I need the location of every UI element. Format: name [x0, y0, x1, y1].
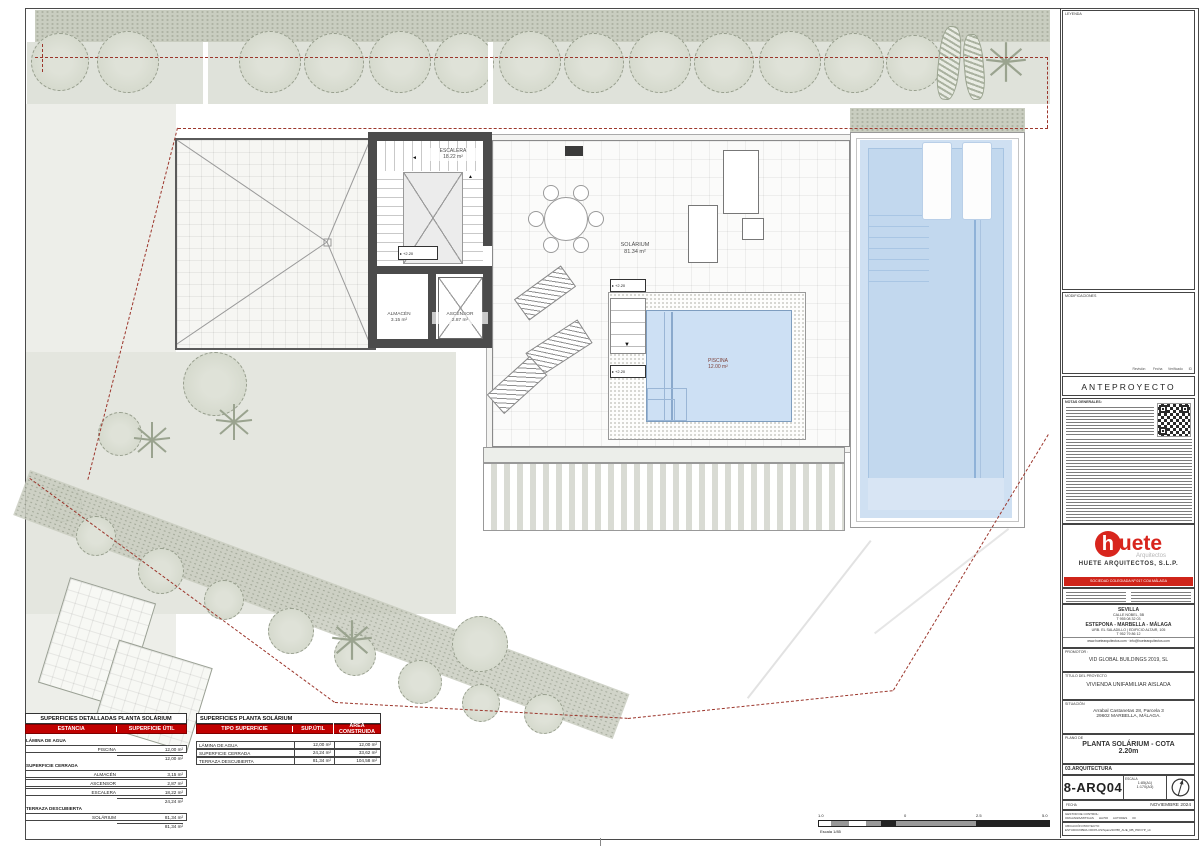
tree-icon	[886, 35, 942, 91]
firm-band: SOCIEDAD COLEGIADA Nº 017 COA MÁLAGA	[1064, 577, 1193, 586]
pergola-beam	[483, 447, 845, 463]
crop-mark	[600, 838, 601, 846]
row-name: TERRAZA DESCUBIERTA	[197, 759, 294, 764]
table-row: SUPERFICIE CERRADA 24,24 m² 33,62 m²	[196, 749, 381, 757]
tree-icon	[452, 616, 508, 672]
arrow-down-icon: ▼	[624, 342, 630, 348]
table-row: ALMACÉN 3,15 m²	[25, 770, 187, 778]
room-area: 81.34 m²	[595, 249, 675, 256]
pool-corner-step	[647, 399, 675, 421]
modifications-label: MODIFICACIONES	[1063, 293, 1194, 299]
notes-text	[1066, 439, 1192, 521]
room-label-escalera: ESCALERA 18.22 m²	[424, 148, 482, 161]
legend-label: LEYENDA	[1063, 11, 1194, 17]
tree-icon	[369, 31, 431, 93]
location-line2: 29602 MARBELLA, MÁLAGA.	[1063, 714, 1194, 719]
chair-icon	[573, 237, 589, 253]
col-header: SUPERFICIE ÚTIL	[116, 726, 186, 732]
section-label: LÁMINA DE AGUA	[26, 738, 66, 743]
scale-caption: Escala 1/85	[820, 829, 841, 834]
offices-box: SEVILLA CALLE NOBEL, 5B T 955 08 32 03 E…	[1062, 604, 1195, 648]
pool-lounger-icon	[922, 142, 952, 220]
chair-icon	[588, 211, 604, 227]
section-subtotal: 12,00 m²	[117, 755, 183, 761]
promotor-label: PROMOTOR :	[1063, 649, 1194, 655]
tree-icon	[694, 33, 754, 93]
scale-value-2: 1:170(A3)	[1124, 785, 1166, 789]
architect-text	[1131, 592, 1191, 602]
sheet-code-row: 8-ARQ04 ESCALA 1:85(A1) 1:170(A3)	[1062, 775, 1195, 800]
level-marker: ▸+2.20	[610, 365, 646, 378]
planter	[688, 205, 718, 263]
date-value: NOVIEMBRE 2024	[1150, 803, 1191, 808]
path-value: ESTUDIO/OBRA OFFPLUS/Spain/20788_AUE_RB_…	[1065, 828, 1192, 832]
tree-icon	[268, 608, 314, 654]
tree-icon	[564, 33, 624, 93]
table-row: LÁMINA DE AGUA 12,00 m² 12,00 m²	[196, 741, 381, 749]
boundary-line	[35, 57, 1048, 58]
row-name: SUPERFICIE CERRADA	[197, 751, 294, 756]
room-area: 3.15 m²	[371, 318, 427, 324]
tree-icon	[462, 684, 500, 722]
planter	[723, 150, 759, 214]
row-construida: 33,62 m²	[334, 750, 380, 756]
firm-name: HUETE ARQUITECTOS, S.L.P.	[1063, 561, 1194, 567]
row-util: 12,00 m²	[294, 742, 334, 748]
scale-tick-label: 1.0	[818, 813, 824, 818]
tree-icon	[824, 33, 884, 93]
row-value: 18,22 m²	[119, 790, 186, 795]
location-label: SITUACIÓN	[1063, 701, 1194, 707]
row-value: 81,34 m²	[119, 815, 186, 820]
scale-bar-segments	[818, 820, 1050, 827]
control-row: GESTOR DE CONTROL: ORGANIZA/MITIGAS HA70…	[1062, 810, 1195, 822]
col-header: TIPO SUPERFICIE	[197, 726, 292, 732]
sheet-name-line1: PLANTA SOLÁRIUM - COTA	[1063, 741, 1194, 748]
flag-icon: ▸	[612, 283, 614, 288]
row-name: LÁMINA DE AGUA	[197, 743, 294, 748]
architects-row	[1062, 588, 1195, 604]
level-marker: ▸+2.20	[398, 246, 438, 260]
architect-text	[1066, 592, 1126, 602]
logo-h-icon: h	[1095, 531, 1121, 557]
palm-tree-icon	[984, 40, 1028, 84]
notes-text	[1066, 407, 1154, 435]
project-label: TÍTULO DEL PROYECTO	[1063, 673, 1194, 679]
section-label: TERRAZA DESCUBIERTA	[26, 806, 82, 811]
pergola-louvers	[483, 463, 845, 531]
project-title-box: TÍTULO DEL PROYECTO VIVIENDA UNIFAMILIAR…	[1062, 672, 1195, 700]
table-header-row: TIPO SUPERFICIE SUP.ÚTIL ÁREA CONSTRUIDA	[196, 724, 381, 734]
qr-code	[1157, 403, 1191, 437]
tree-icon	[499, 31, 561, 93]
tree-icon	[398, 660, 442, 704]
discipline-row: 03.ARQUITECTURA	[1062, 764, 1195, 775]
level-value: +2.20	[403, 251, 413, 256]
control-value: ORGANIZA/MITIGAS HA700 AUTODES 00	[1065, 816, 1192, 820]
roof-ridge-lines	[177, 140, 374, 348]
table-row: PISCINA 12,00 m²	[25, 745, 187, 753]
row-name: ESCALERA	[26, 790, 119, 795]
tree-icon	[204, 580, 244, 620]
titleblock-divider	[1060, 8, 1061, 838]
level-marker: ▸+2.20	[610, 279, 646, 292]
arrow-left-icon: ◄	[412, 155, 417, 161]
tree-icon	[759, 31, 821, 93]
row-name: SOLÁRIUM	[26, 815, 119, 820]
row-value: 3,15 m²	[119, 772, 186, 777]
level-value: +2.20	[615, 369, 625, 374]
table-title: SUPERFICIES DETALLADAS PLANTA SOLÁRIUM	[25, 713, 187, 724]
room-label-ascensor: ASCENSOR 2.87 m²	[432, 312, 488, 324]
round-table-icon	[544, 197, 588, 241]
revision-headers: Revisión Fecha Verificado ID	[1132, 367, 1192, 371]
chair-icon	[528, 211, 544, 227]
path-gap	[203, 42, 208, 104]
row-util: 81,34 m²	[294, 758, 334, 764]
sheet-name-box: PLANO DE PLANTA SOLÁRIUM - COTA 2.20m	[1062, 734, 1195, 764]
row-construida: 12,00 m²	[334, 742, 380, 748]
tree-icon	[304, 33, 364, 93]
project-value: VIVIENDA UNIFAMILIAR AISLADA	[1063, 682, 1194, 688]
row-name: ASCENSOR	[26, 781, 119, 786]
scale-tick-label: 2.5	[976, 813, 982, 818]
logo-box: h uete Arquitectos HUETE ARQUITECTOS, S.…	[1062, 524, 1195, 588]
table-row: ESCALERA 18,22 m²	[25, 788, 187, 796]
row-name: PISCINA	[26, 747, 119, 752]
room-label-piscina: PISCINA 12.00 m²	[686, 358, 750, 371]
row-construida: 104,58 m²	[334, 758, 380, 764]
arrow-up-icon: ▲	[468, 174, 473, 180]
scale-bar: 1.0 0 2.5 5.0 Escala 1/85	[818, 813, 1050, 835]
tree-icon	[97, 31, 159, 93]
date-label: FECHA	[1066, 803, 1077, 807]
palm-tree-icon	[330, 618, 374, 662]
boundary-line	[42, 44, 43, 72]
section-subtotal: 81,34 m²	[117, 823, 183, 829]
drawing-sheet: SOLÁRIUM 81.34 m² PISCINA 12.00 m² ▼ ◄ ▲…	[0, 0, 1200, 846]
pool-shallow-band	[868, 478, 1004, 510]
sheet-code: 8-ARQ04	[1063, 776, 1124, 799]
palm-tree-icon	[132, 420, 172, 460]
promotor-box: PROMOTOR : VID GLOBAL BUILDINGS 2019, SL	[1062, 648, 1195, 672]
room-area: 18.22 m²	[424, 154, 482, 160]
row-util: 24,24 m²	[294, 750, 334, 756]
date-row: FECHA NOVIEMBRE 2024	[1062, 800, 1195, 810]
room-label-almacen: ALMACÉN 3.15 m²	[371, 312, 427, 324]
path-gap	[488, 42, 493, 104]
section-subtotal: 24,24 m²	[117, 798, 183, 804]
office-web: www.huetearquitectos.com · info@huetearq…	[1063, 637, 1194, 643]
flag-icon: ▸	[612, 369, 614, 374]
scale-tick-label: 0	[904, 813, 906, 818]
room-name: SOLÁRIUM	[595, 242, 675, 249]
office-phone: T 952 79 86 12	[1063, 632, 1194, 636]
wall	[368, 266, 492, 274]
tree-icon	[31, 33, 89, 91]
general-notes-box: NOTAS GENERALES:	[1062, 398, 1195, 524]
row-name: ALMACÉN	[26, 772, 119, 777]
file-path-row: UBICACIÓN PROYECTO ESTUDIO/OBRA OFFPLUS/…	[1062, 822, 1195, 836]
pool-lounger-icon	[962, 142, 992, 220]
wall	[428, 274, 436, 340]
level-value: +2.20	[615, 283, 625, 288]
row-value: 2,87 m²	[119, 781, 186, 786]
flag-icon: ▸	[400, 251, 402, 256]
tree-icon	[629, 31, 691, 93]
scale-tick-label: 5.0	[1042, 813, 1048, 818]
setback-line	[178, 128, 1048, 129]
legend-box: LEYENDA	[1062, 10, 1195, 290]
col-header: ESTANCIA	[26, 726, 116, 732]
promotor-value: VID GLOBAL BUILDINGS 2019, SL	[1063, 657, 1194, 663]
row-value: 12,00 m²	[119, 747, 186, 752]
room-label-solarium: SOLÁRIUM 81.34 m²	[595, 242, 675, 256]
tree-icon	[434, 33, 494, 93]
office-phone: T 955 08 32 03	[1063, 617, 1194, 621]
col-header: ÁREA CONSTRUIDA	[333, 723, 380, 735]
boundary-line	[1047, 57, 1048, 128]
palm-tree-icon	[214, 402, 254, 442]
section-label: SUPERFICIE CERRADA	[26, 763, 78, 768]
planter	[742, 218, 764, 240]
col-header: SUP.ÚTIL	[292, 726, 333, 732]
door-opening	[483, 246, 492, 266]
table-row: SOLÁRIUM 81,34 m²	[25, 813, 187, 821]
north-arrow-icon	[1168, 775, 1194, 801]
status-band: ANTEPROYECTO	[1062, 376, 1195, 396]
tree-icon	[239, 31, 301, 93]
room-area: 12.00 m²	[686, 364, 750, 370]
pool-steps	[869, 205, 929, 285]
elevator-shaft	[438, 277, 483, 339]
rooflight-vent	[565, 146, 583, 156]
room-area: 2.87 m²	[432, 318, 488, 324]
modifications-box: MODIFICACIONES Revisión Fecha Verificado…	[1062, 292, 1195, 374]
sheet-name-line2: 2.20m	[1063, 748, 1194, 755]
table-row: TERRAZA DESCUBIERTA 81,34 m² 104,58 m²	[196, 757, 381, 765]
table-row: ASCENSOR 2,87 m²	[25, 779, 187, 787]
chair-icon	[543, 237, 559, 253]
location-box: SITUACIÓN Arrabal Castanetas 28, Parcela…	[1062, 700, 1195, 734]
table-header-row: ESTANCIA SUPERFICIE ÚTIL	[25, 724, 187, 734]
